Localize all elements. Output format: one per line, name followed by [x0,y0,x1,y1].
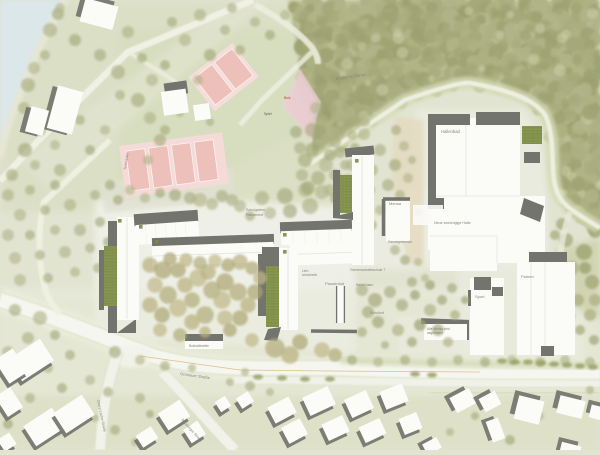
svg-text:Schulgarten: Schulgarten [246,208,265,212]
svg-text:Schulhof: Schulhof [370,311,384,315]
svg-text:Bolz: Bolz [284,96,291,100]
svg-text:Parken: Parken [521,274,534,279]
svg-text:Pausenhof: Pausenhof [246,213,263,217]
svg-text:Mensa: Mensa [389,201,402,206]
svg-text:abgerissen: abgerissen [427,331,443,335]
svg-text:Ganztagsbereich: Ganztagsbereich [388,240,412,244]
svg-text:Neue zweizügige Halle: Neue zweizügige Halle [434,221,471,225]
svg-text:Spiel: Spiel [264,112,272,116]
svg-text:Raum Natur: Raum Natur [356,283,374,287]
svg-text:Bushaltestelle: Bushaltestelle [189,344,209,348]
svg-text:Sport: Sport [475,294,485,299]
svg-text:Gemeinschaftsschule 7: Gemeinschaftsschule 7 [350,268,385,272]
svg-text:schwimmb.: schwimmb. [302,273,318,277]
svg-text:Hallenbad: Hallenbad [441,129,461,134]
svg-text:Pausenhof: Pausenhof [325,281,345,286]
